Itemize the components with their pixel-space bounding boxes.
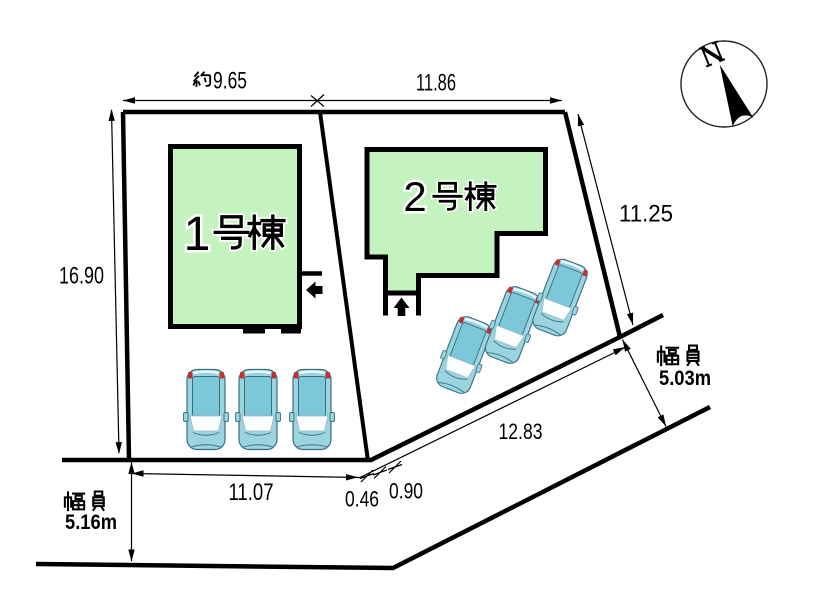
svg-text:11.07: 11.07	[229, 479, 274, 506]
svg-text:11.25: 11.25	[619, 201, 673, 228]
svg-text:5.16m: 5.16m	[65, 511, 117, 534]
svg-text:2: 2	[403, 173, 426, 220]
svg-text:5.03m: 5.03m	[659, 367, 711, 390]
svg-text:1: 1	[184, 208, 211, 261]
svg-text:16.90: 16.90	[59, 263, 104, 290]
svg-text:0.46: 0.46	[345, 487, 379, 512]
svg-text:9.65: 9.65	[213, 68, 247, 95]
svg-text:11.86: 11.86	[416, 70, 456, 97]
svg-text:12.83: 12.83	[499, 419, 543, 444]
svg-text:0.90: 0.90	[389, 479, 423, 504]
